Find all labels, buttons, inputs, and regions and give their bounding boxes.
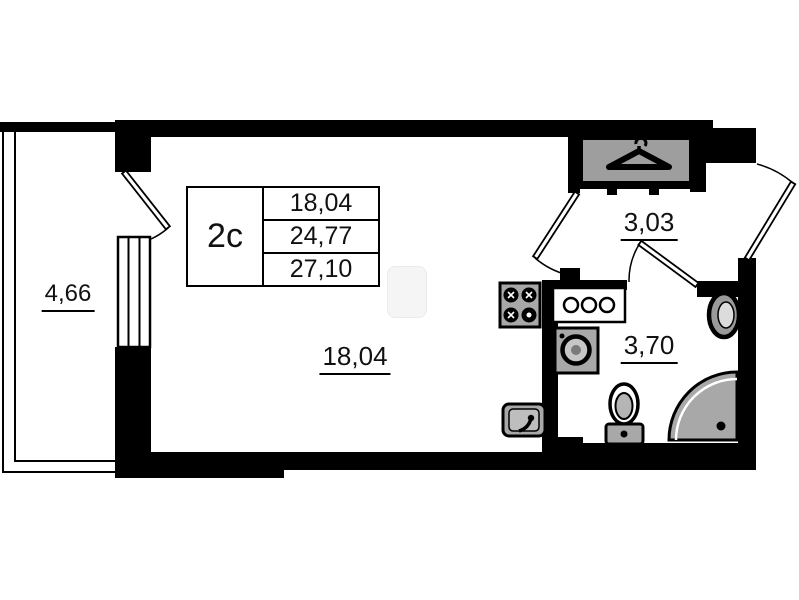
unit-type-label: 2c: [188, 188, 264, 285]
legend-area-2: 24,77: [264, 221, 378, 254]
stove-icon: [500, 283, 540, 327]
legend-area-3: 27,10: [264, 254, 378, 285]
vanity-counter-icon: [553, 288, 625, 322]
balcony-area-label: 4,66: [42, 282, 95, 312]
hall-area-label: 3,03: [621, 209, 678, 241]
washbasin-icon: [709, 293, 742, 337]
hall-door-leaf-icon: [533, 192, 579, 259]
legend-area-1: 18,04: [264, 188, 378, 221]
balcony-door-swing-arc: [151, 228, 168, 239]
balcony-door-leaf-icon: [122, 170, 170, 229]
hanger-icon: [609, 138, 669, 167]
floor-plan: 2c 18,04 24,77 27,10 18,04 3,03 3,70 4,6…: [0, 0, 799, 600]
washing-machine-icon: [555, 328, 598, 373]
bathroom-door-leaf-icon: [638, 241, 698, 287]
entrance-door-leaf-icon: [745, 182, 795, 261]
window-icon: [118, 237, 150, 347]
bathroom-door-swing-arc: [629, 243, 640, 282]
bathroom-area-label: 3,70: [621, 332, 678, 364]
shower-cabin-icon: [669, 372, 737, 440]
entrance-door-swing-arc: [757, 164, 793, 183]
hall-door-swing-arc: [535, 258, 568, 275]
toilet-icon: [606, 384, 643, 444]
living-room-area-label: 18,04: [319, 343, 390, 375]
plan-linework: [0, 0, 799, 600]
legend-table: 2c 18,04 24,77 27,10: [186, 186, 380, 287]
kitchen-sink-icon: [503, 404, 545, 436]
legend-values: 18,04 24,77 27,10: [264, 188, 378, 285]
